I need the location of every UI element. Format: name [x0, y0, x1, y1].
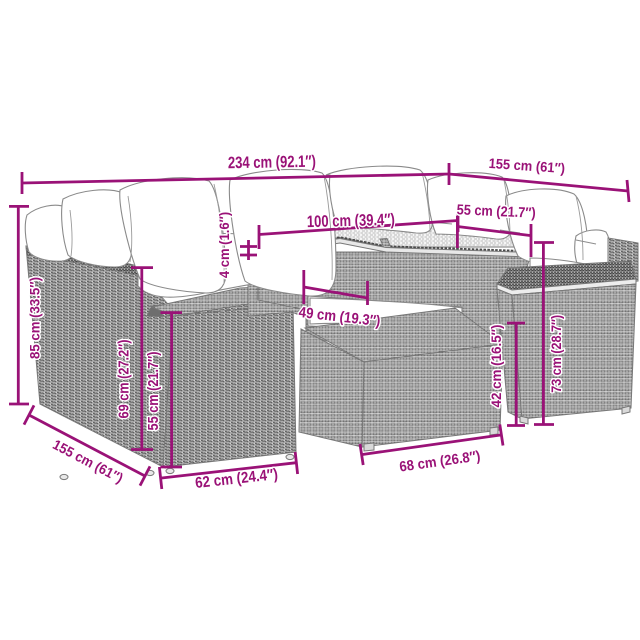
- svg-text:4 cm (1.6″): 4 cm (1.6″): [217, 212, 232, 278]
- svg-text:155 cm (61″): 155 cm (61″): [488, 155, 565, 176]
- svg-text:234 cm (92.1″): 234 cm (92.1″): [228, 152, 316, 173]
- svg-text:100 cm (39.4″): 100 cm (39.4″): [307, 210, 395, 231]
- svg-text:69 cm (27.2″): 69 cm (27.2″): [116, 339, 132, 418]
- svg-text:85 cm (33.5″): 85 cm (33.5″): [27, 277, 42, 359]
- svg-text:55 cm (21.7″): 55 cm (21.7″): [146, 351, 162, 430]
- svg-text:73 cm (28.7″): 73 cm (28.7″): [549, 315, 564, 393]
- svg-text:68 cm (26.8″): 68 cm (26.8″): [398, 448, 481, 475]
- svg-text:62 cm (24.4″): 62 cm (24.4″): [194, 466, 278, 492]
- svg-text:42 cm (16.5″): 42 cm (16.5″): [489, 325, 504, 408]
